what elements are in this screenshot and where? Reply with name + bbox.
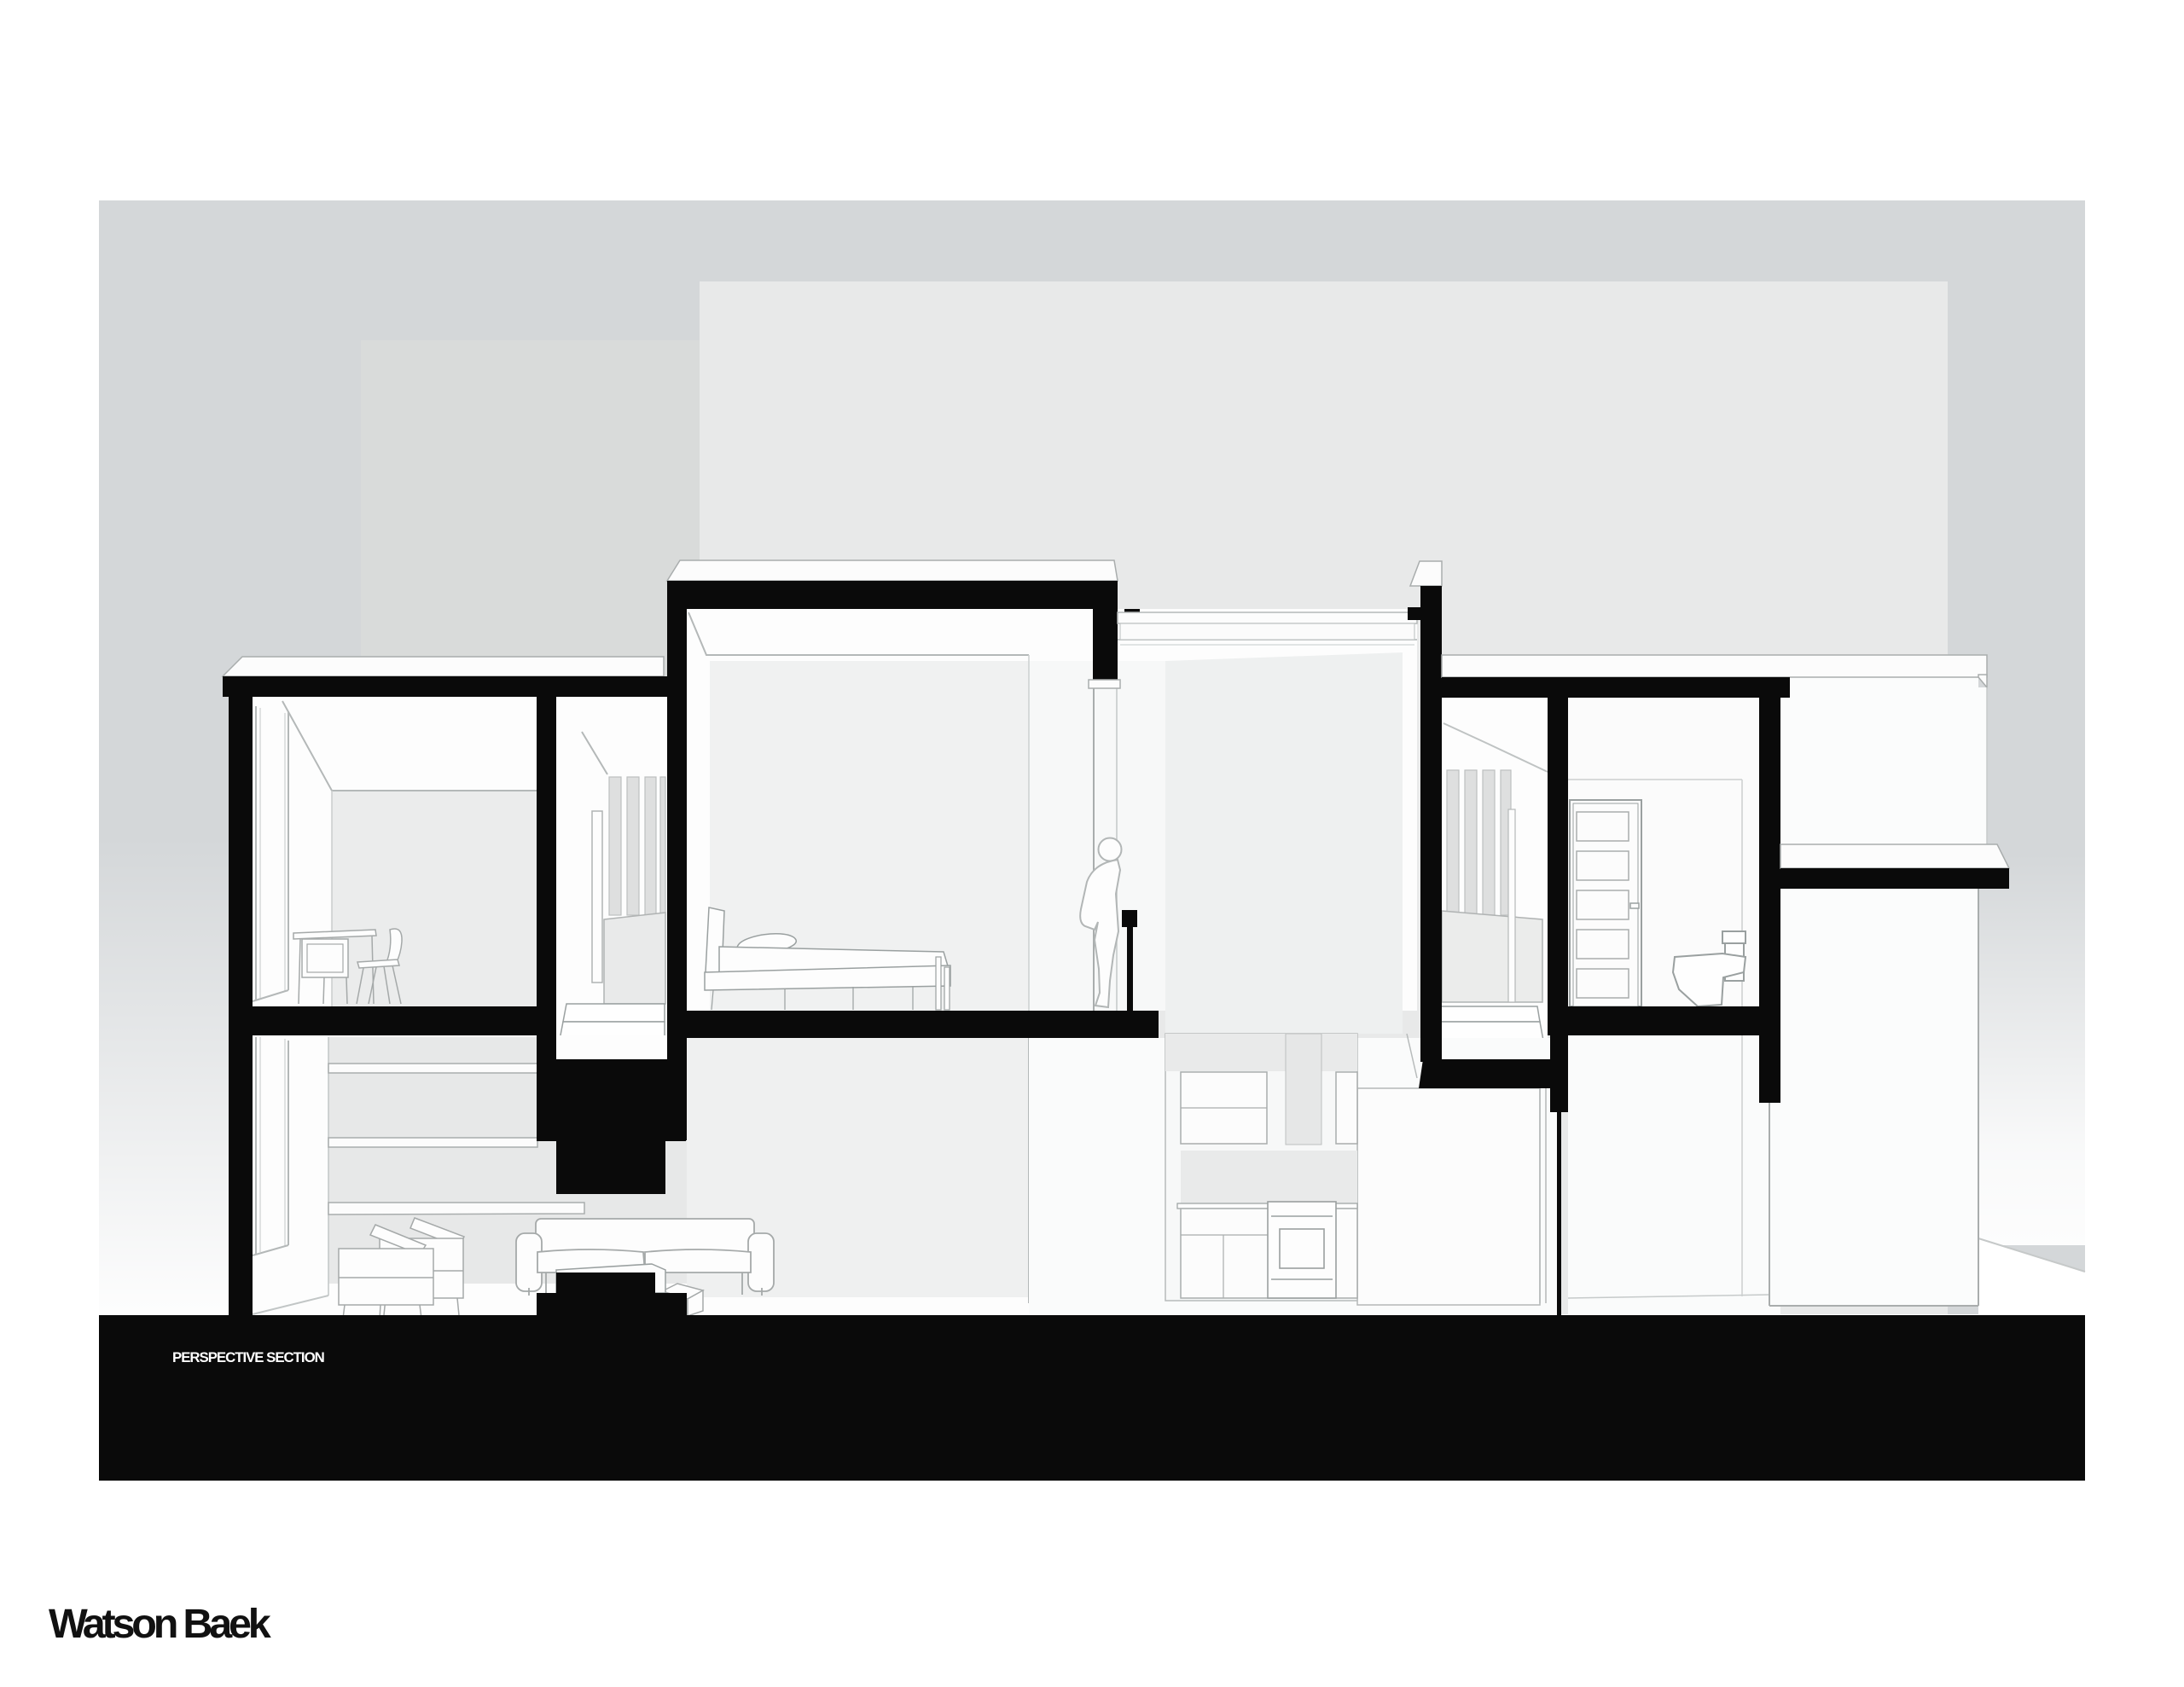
- svg-text:Watson Baek: Watson Baek: [49, 1601, 272, 1647]
- svg-text:PERSPECTIVE SECTION: PERSPECTIVE SECTION: [172, 1349, 324, 1365]
